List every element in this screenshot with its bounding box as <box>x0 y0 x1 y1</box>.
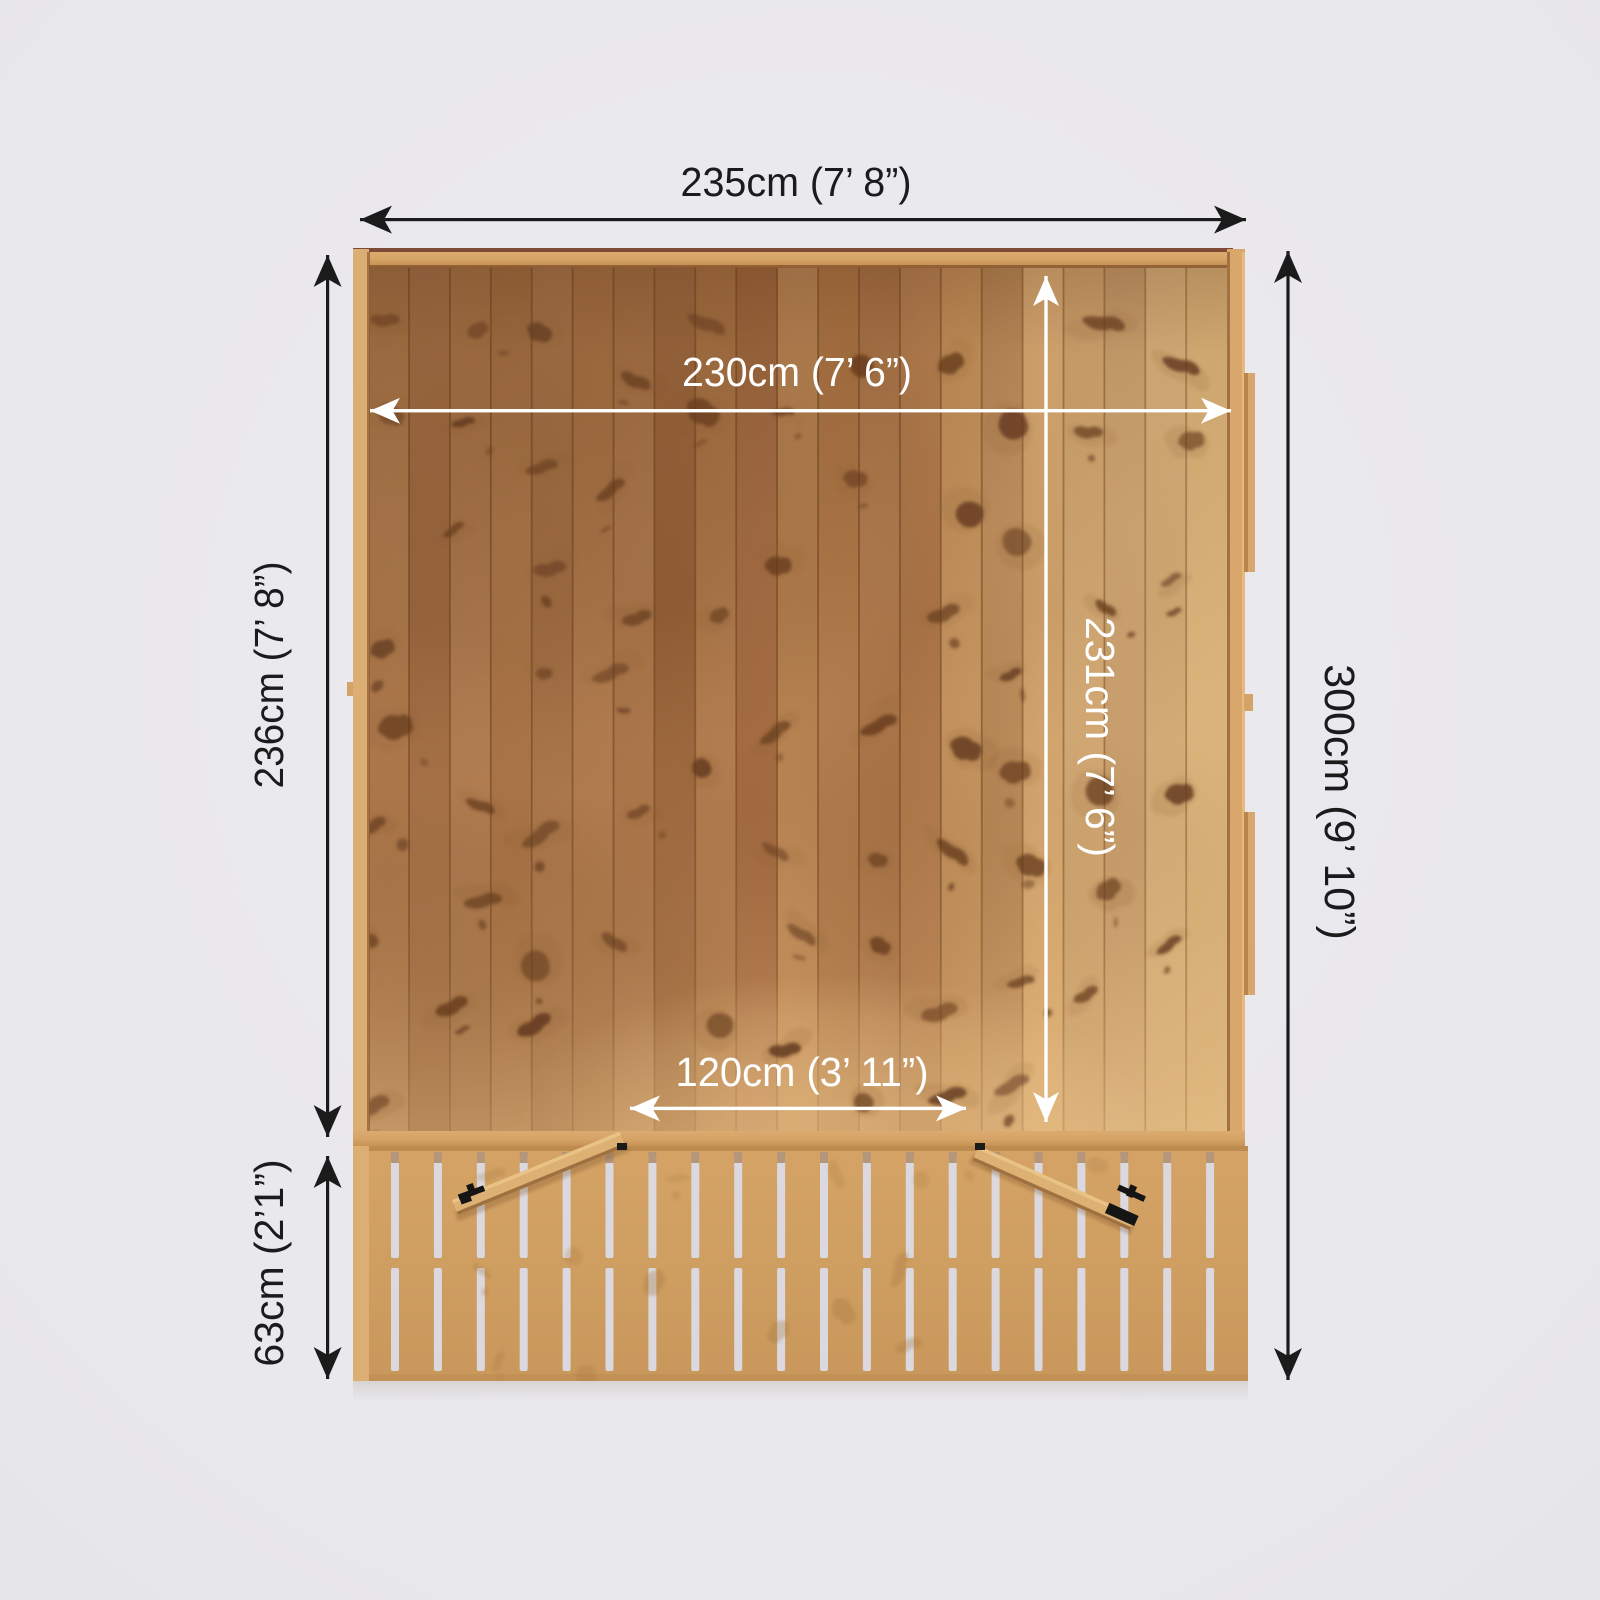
svg-text:63cm (2’1”): 63cm (2’1”) <box>246 1159 292 1366</box>
svg-text:231cm (7’ 6”): 231cm (7’ 6”) <box>1077 617 1123 857</box>
svg-text:120cm (3’ 11”): 120cm (3’ 11”) <box>676 1049 929 1095</box>
svg-text:236cm (7’ 8”): 236cm (7’ 8”) <box>246 562 292 789</box>
svg-text:300cm (9’ 10”): 300cm (9’ 10”) <box>1315 664 1363 940</box>
svg-text:235cm (7’ 8”): 235cm (7’ 8”) <box>681 159 912 205</box>
svg-text:230cm (7’ 6”): 230cm (7’ 6”) <box>682 349 912 395</box>
